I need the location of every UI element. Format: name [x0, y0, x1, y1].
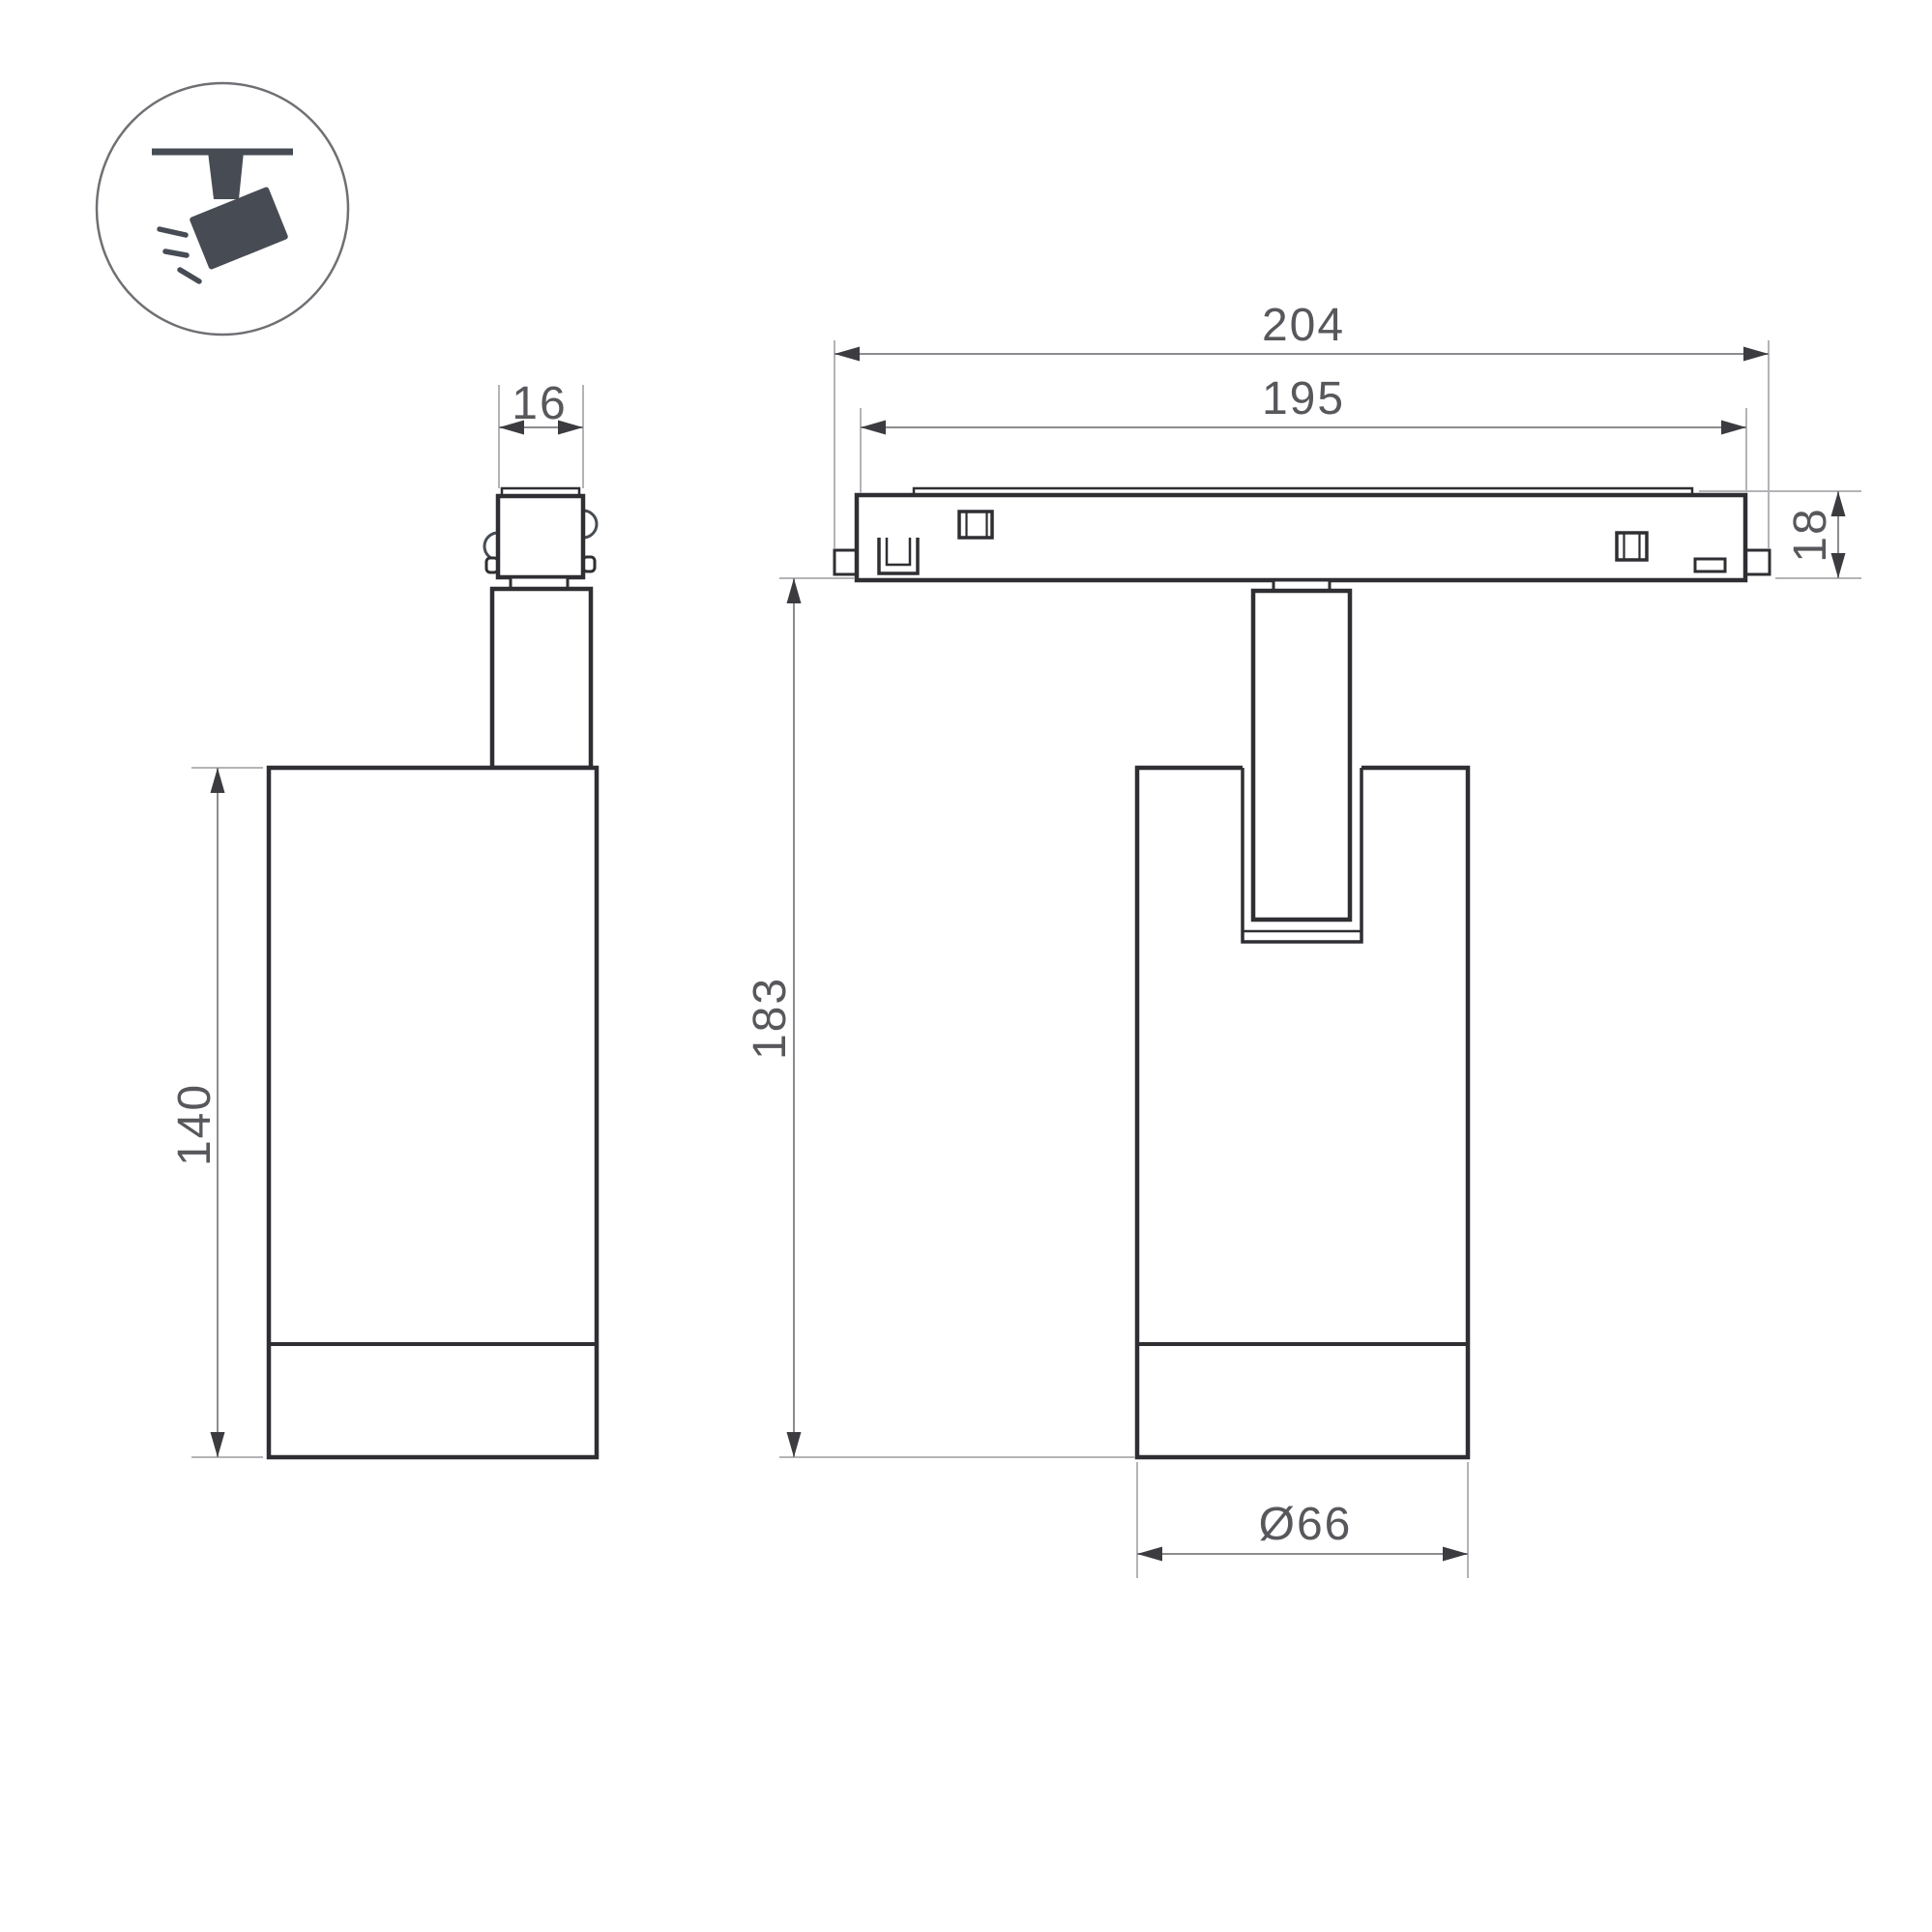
- lamp-body-side: [269, 768, 597, 1457]
- dim-label-16: 16: [512, 378, 567, 429]
- track-spotlight-dimension-drawing: 16 140 204 195 18: [0, 0, 1932, 1932]
- dim-label-204: 204: [1262, 300, 1345, 351]
- track-end-tab-left: [834, 550, 857, 574]
- mount-stem-icon: [208, 152, 244, 199]
- track-slot-opening: [1695, 559, 1725, 571]
- front-view: [834, 488, 1770, 1457]
- dim-label-183: 183: [745, 977, 796, 1060]
- dim-label-195: 195: [1262, 373, 1345, 424]
- dim-label-140: 140: [169, 1083, 220, 1166]
- technical-drawing-page: 16 140 204 195 18: [0, 0, 1932, 1932]
- lamp-head-icon: [189, 187, 288, 271]
- track-end-tab-right: [1745, 550, 1770, 574]
- stem-side: [492, 589, 591, 768]
- dimension-track-inner: 195: [861, 373, 1746, 493]
- track-spotlight-icon: [97, 83, 348, 335]
- dim-label-18: 18: [1785, 507, 1836, 562]
- dimension-adapter-width: 16: [499, 378, 583, 488]
- dimension-overall-height: 183: [745, 578, 1135, 1457]
- dimension-body-diameter: Ø66: [1137, 1462, 1468, 1578]
- track-screw-right: [1617, 533, 1647, 560]
- track-screw-left: [959, 512, 992, 538]
- light-rays-icon: [160, 229, 199, 281]
- adapter-box-side: [498, 496, 583, 577]
- side-view: [269, 488, 597, 1457]
- stem-front: [1253, 591, 1350, 920]
- dimension-body-height: 140: [169, 768, 263, 1457]
- dim-label-66: Ø66: [1259, 1499, 1353, 1550]
